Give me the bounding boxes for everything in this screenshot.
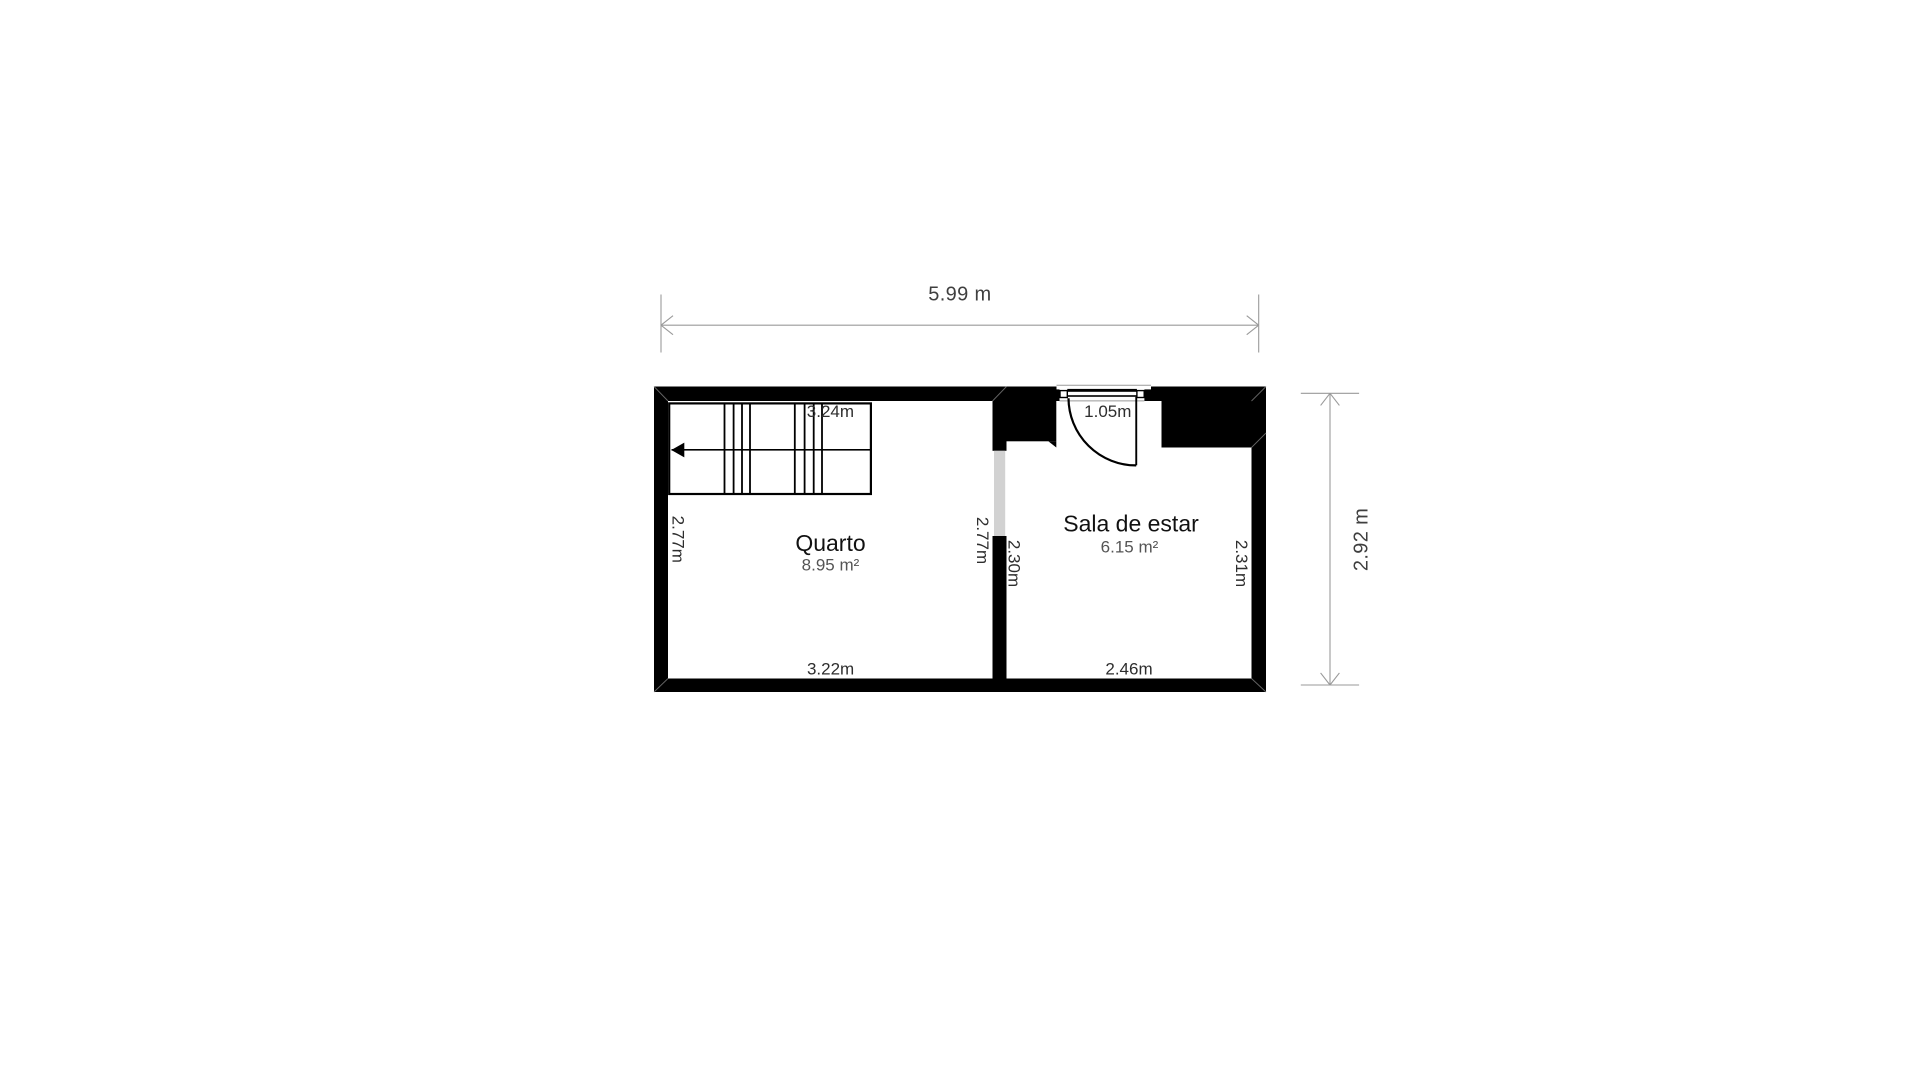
svg-text:2.46m: 2.46m — [1105, 660, 1152, 679]
svg-text:3.24m: 3.24m — [807, 402, 854, 421]
svg-text:1.05m: 1.05m — [1084, 402, 1131, 421]
svg-text:2.31m: 2.31m — [1232, 540, 1251, 587]
svg-text:5.99 m: 5.99 m — [928, 283, 991, 305]
svg-text:3.22m: 3.22m — [807, 660, 854, 679]
svg-text:6.15 m²: 6.15 m² — [1101, 538, 1159, 557]
svg-text:2.92 m: 2.92 m — [1351, 508, 1373, 571]
svg-text:Sala de estar: Sala de estar — [1063, 511, 1199, 537]
svg-text:Quarto: Quarto — [795, 530, 865, 556]
svg-text:8.95 m²: 8.95 m² — [802, 556, 860, 575]
svg-text:2.30m: 2.30m — [1005, 540, 1024, 587]
svg-text:2.77m: 2.77m — [669, 516, 688, 563]
svg-text:2.77m: 2.77m — [973, 517, 992, 564]
